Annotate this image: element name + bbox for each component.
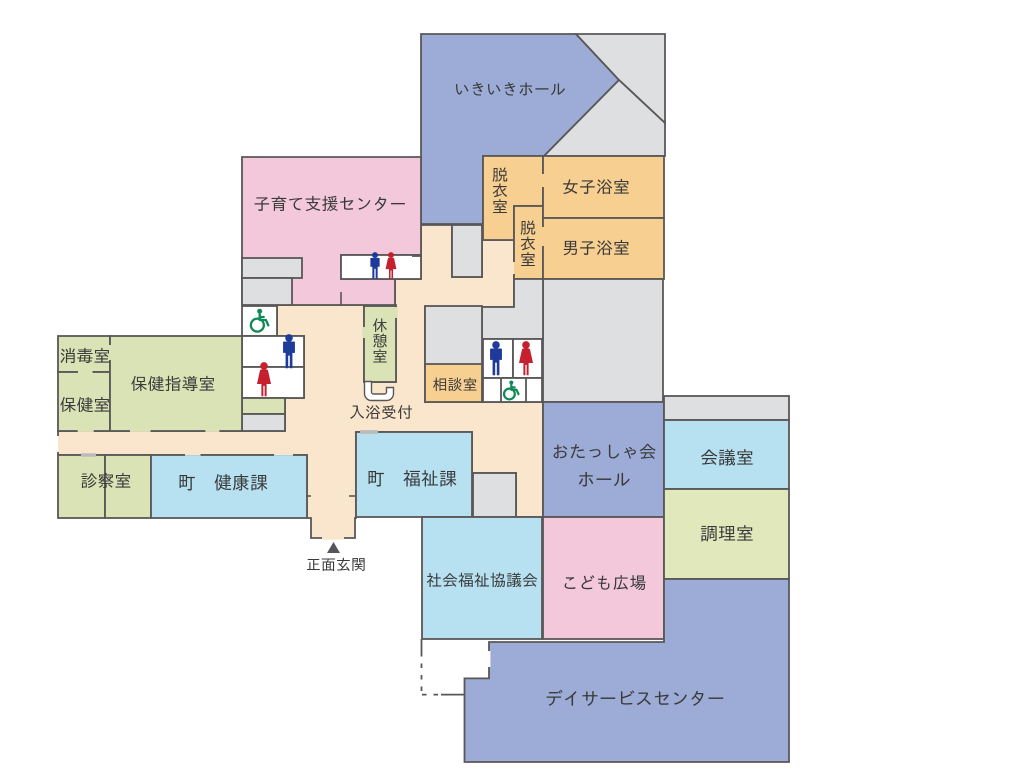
svg-text:脱: 脱 — [520, 220, 536, 238]
svg-text:町 健康課: 町 健康課 — [178, 473, 268, 493]
svg-text:デイサービスセンター: デイサービスセンター — [545, 689, 725, 709]
svg-text:調理室: 調理室 — [700, 524, 754, 544]
svg-text:衣: 衣 — [520, 237, 536, 254]
svg-text:室: 室 — [372, 349, 388, 366]
svg-text:女子浴室: 女子浴室 — [562, 178, 630, 197]
svg-text:脱: 脱 — [492, 167, 508, 185]
svg-text:いきいきホール: いきいきホール — [454, 82, 566, 99]
svg-text:会議室: 会議室 — [700, 448, 754, 468]
svg-text:町 福祉課: 町 福祉課 — [367, 469, 457, 489]
svg-text:消毒室: 消毒室 — [60, 347, 111, 366]
svg-text:室: 室 — [492, 200, 508, 217]
svg-text:診察室: 診察室 — [81, 472, 132, 491]
svg-text:室: 室 — [520, 253, 536, 270]
svg-text:休: 休 — [372, 318, 388, 335]
svg-text:保健指導室: 保健指導室 — [131, 375, 216, 394]
svg-text:憩: 憩 — [372, 333, 388, 350]
svg-text:こども広場: こども広場 — [562, 574, 647, 593]
svg-text:相談室: 相談室 — [433, 377, 478, 394]
svg-text:子育て支援センター: 子育て支援センター — [254, 195, 407, 214]
svg-text:ホール: ホール — [577, 470, 631, 490]
svg-text:おたっしゃ会: おたっしゃ会 — [552, 442, 657, 462]
svg-text:衣: 衣 — [492, 184, 508, 201]
svg-text:入浴受付: 入浴受付 — [349, 404, 413, 422]
svg-text:社会福祉協議会: 社会福祉協議会 — [426, 572, 538, 590]
svg-text:男子浴室: 男子浴室 — [562, 239, 630, 258]
svg-text:保健室: 保健室 — [60, 396, 111, 415]
svg-text:正面玄関: 正面玄関 — [306, 557, 366, 574]
